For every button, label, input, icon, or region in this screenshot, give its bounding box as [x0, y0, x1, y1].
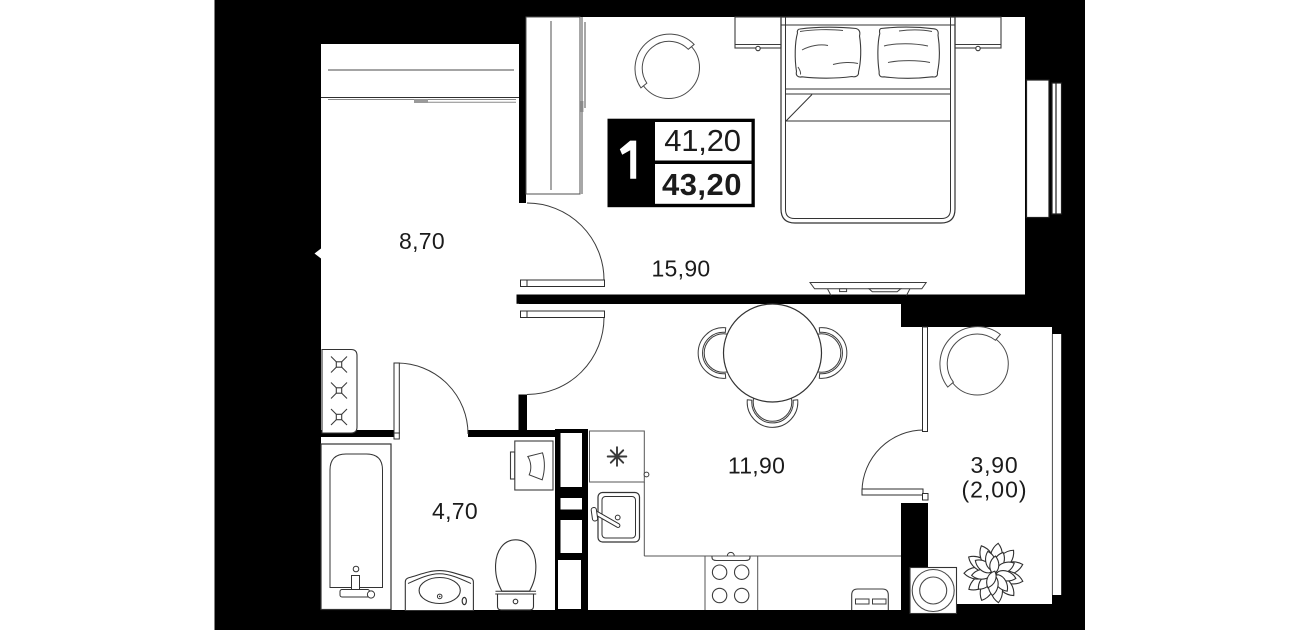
svg-text:41,20: 41,20 — [664, 123, 741, 158]
svg-text:8,70: 8,70 — [399, 228, 445, 254]
svg-text:(2,00): (2,00) — [961, 477, 1027, 503]
svg-text:11,90: 11,90 — [728, 453, 785, 479]
svg-text:3,90: 3,90 — [971, 452, 1019, 478]
svg-text:4,70: 4,70 — [432, 498, 478, 524]
svg-text:43,20: 43,20 — [662, 167, 742, 202]
svg-text:15,90: 15,90 — [651, 256, 710, 282]
